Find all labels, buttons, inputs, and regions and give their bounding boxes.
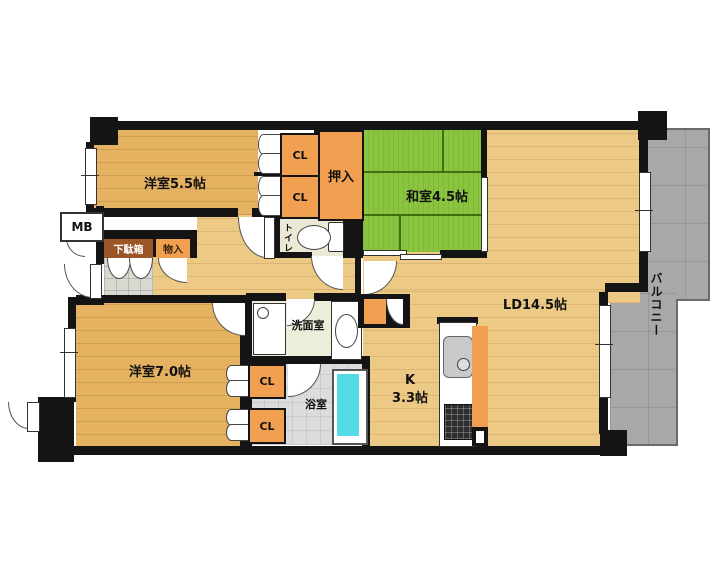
label-washroom: 洗面室 [284,318,332,332]
entrance-door-leaf [90,264,102,299]
balcony-rail-step [676,299,710,301]
window-west-55 [85,148,97,205]
wall-segment [440,250,487,258]
label-kitchen-size: 3.3帖 [385,389,435,404]
balcony-rail-right-upper [708,128,710,301]
window-tick [635,210,653,211]
meter-box-label: MB [71,220,92,234]
tatami-line [363,214,487,216]
oshiire-label: 押入 [328,166,354,185]
balcony-label: バルコニー [648,262,665,346]
wall-segment [605,283,648,292]
label-bathroom: 浴室 [298,397,334,411]
label-western-room-70: 洋室7.0帖 [105,362,215,378]
kitchen-sink [443,336,473,378]
tatami-line [442,130,444,173]
wall-segment [246,293,286,301]
label-toilet: トイレ [281,219,294,256]
wall-bottom [40,446,627,455]
shoe-cabinet: 下駄箱 [104,239,153,258]
side-door-leaf [27,402,40,432]
bifold-door [258,153,280,174]
label-kitchen-k: K [395,373,425,388]
entrance-door-arc [64,264,93,298]
window-tick [60,352,78,353]
window-ld-upper [639,172,651,252]
closet-55-top: CL [280,133,320,177]
bathtub [337,374,359,436]
kitchen-bar-counter [472,326,488,427]
meter-box: MB [60,212,104,242]
wall-segment [639,130,648,172]
bifold-door [226,380,248,397]
vanity-basin [335,314,358,348]
balcony-lower [610,292,676,446]
kitchen-wall-slot [476,431,484,443]
window-tick [81,175,99,176]
washer-drain-icon [257,307,269,319]
western-55-door-leaf [264,217,275,259]
floor-ld-upper [487,130,640,290]
closet-label: CL [259,375,274,388]
storage-monoire-label: 物入 [163,241,183,256]
closet-55-bottom: CL [280,175,320,219]
wall-segment [246,301,252,358]
closet-label: CL [292,149,307,162]
label-western-room-55: 洋室5.5帖 [120,174,230,190]
bifold-door [258,176,280,197]
closet-label: CL [259,420,274,433]
bifold-door [258,134,280,155]
storage-monoire: 物入 [156,239,190,258]
closet-70-bottom: CL [248,408,286,444]
tatami-line [363,171,487,173]
floor-plan: バルコニー [0,0,720,576]
wall-segment [314,293,360,301]
bifold-door [226,424,248,441]
oshiire-closet: 押入 [318,130,364,221]
column-top-left [90,117,118,145]
toilet-bowl [297,225,331,250]
kitchen-stove [444,404,473,440]
shoe-cabinet-label: 下駄箱 [114,241,144,256]
closet-label: CL [292,191,307,204]
wall-segment [96,230,197,239]
fusuma-slider [400,254,442,260]
wall-segment [481,130,487,177]
window-west-70 [64,328,76,398]
window-tick [595,344,613,345]
storage-fill [364,299,386,324]
kitchen-faucet [457,358,470,371]
bifold-door [258,195,280,216]
wall-top [90,121,667,130]
label-living-dining: LD14.5帖 [495,295,575,311]
wall-segment [599,396,608,434]
wall-segment [68,305,76,330]
label-tatami-room: 和室4.5帖 [383,187,491,203]
closet-70-top: CL [248,364,286,399]
wall-segment [190,230,197,258]
tatami-line [399,214,401,252]
wall-segment [93,208,238,217]
window-ld-lower [599,305,611,398]
balcony-rail-right-lower [676,299,678,446]
wall-segment [343,215,359,258]
side-door-arc [8,402,29,429]
